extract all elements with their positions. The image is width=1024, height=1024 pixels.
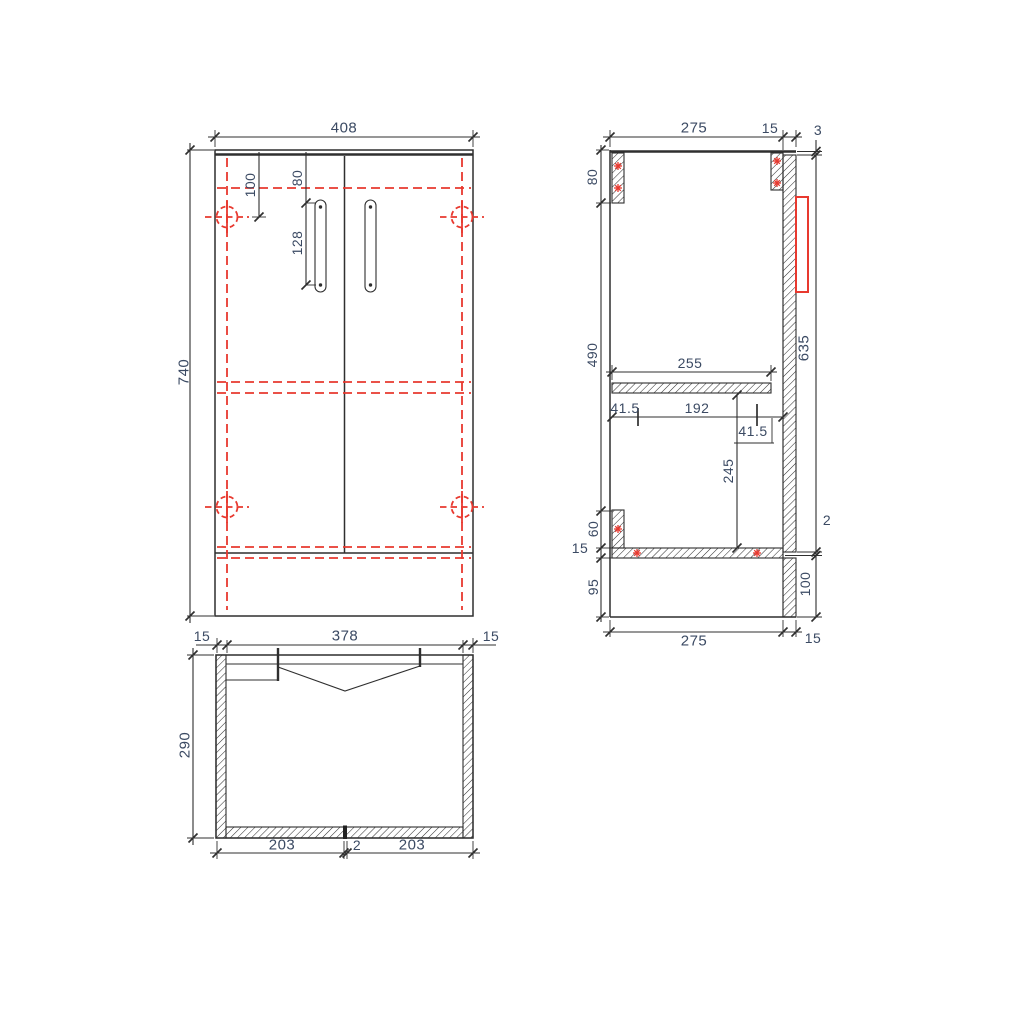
screw-icon bbox=[773, 157, 781, 165]
screw-icon bbox=[614, 525, 622, 533]
door-gap-mark bbox=[343, 826, 347, 840]
screw-icon bbox=[633, 549, 641, 557]
handle-side-profile bbox=[796, 197, 808, 292]
hinge-icon bbox=[205, 201, 249, 233]
screw-icon bbox=[614, 162, 622, 170]
dim-panel-left: 15 bbox=[194, 629, 211, 643]
hinge-icon bbox=[205, 491, 249, 523]
dim-bottom-rail-height: 60 bbox=[586, 521, 600, 538]
shelf-section bbox=[612, 383, 771, 393]
dim-depth-top: 275 bbox=[681, 121, 708, 136]
dim-bottom-gap: 2 bbox=[823, 513, 831, 527]
dim-door-right: 203 bbox=[399, 838, 426, 853]
dim-leg-height: 100 bbox=[798, 572, 812, 597]
dim-bottom-panel-thickness: 15 bbox=[572, 541, 589, 555]
dim-top-gap: 3 bbox=[814, 123, 822, 137]
dim-inner-width: 378 bbox=[332, 629, 359, 644]
dim-shelf-clearance: 245 bbox=[721, 459, 735, 484]
dim-door-height: 635 bbox=[797, 335, 812, 362]
dim-overall-height: 740 bbox=[177, 359, 192, 386]
screw-icon bbox=[773, 179, 781, 187]
back-rail-section bbox=[612, 153, 624, 203]
plinth-section bbox=[783, 558, 796, 617]
dim-hinge-offset: 100 bbox=[243, 173, 257, 198]
dim-offset-back: 41.5 bbox=[610, 401, 639, 415]
dim-interior-height: 490 bbox=[585, 343, 599, 368]
dim-back-rail-height: 80 bbox=[585, 169, 599, 186]
technical-drawing-canvas: 408 740 100 80 128 15 378 15 290 203 2 2… bbox=[0, 0, 1024, 1024]
side-panel-section bbox=[216, 655, 226, 838]
hinge-icon bbox=[440, 201, 484, 233]
dim-door-thickness-top: 15 bbox=[762, 121, 779, 135]
dim-depth: 290 bbox=[178, 732, 193, 759]
dim-handle-length: 128 bbox=[290, 231, 304, 256]
dim-shelf-depth: 255 bbox=[678, 356, 703, 370]
hinge-icon bbox=[440, 491, 484, 523]
dim-depth-bottom: 275 bbox=[681, 634, 708, 649]
dim-panel-right: 15 bbox=[483, 629, 500, 643]
dim-overall-width: 408 bbox=[331, 121, 358, 136]
front-view bbox=[186, 130, 485, 623]
drawing-linework bbox=[0, 0, 1024, 1024]
door-section bbox=[783, 155, 796, 552]
door-handle bbox=[315, 200, 326, 292]
dim-plinth-height: 95 bbox=[586, 579, 600, 596]
dim-door-gap: 2 bbox=[353, 838, 361, 852]
side-panel-section bbox=[463, 655, 473, 838]
screw-icon bbox=[614, 184, 622, 192]
screw-icon bbox=[753, 549, 761, 557]
dim-handle-offset: 80 bbox=[290, 170, 304, 187]
plan-view bbox=[187, 638, 496, 859]
dim-dowel-spacing: 192 bbox=[685, 401, 710, 415]
dim-door-left: 203 bbox=[269, 838, 296, 853]
dim-offset-front: 41.5 bbox=[738, 424, 767, 438]
door-handle bbox=[365, 200, 376, 292]
side-view bbox=[596, 130, 822, 637]
dim-door-thickness-bottom: 15 bbox=[805, 631, 822, 645]
